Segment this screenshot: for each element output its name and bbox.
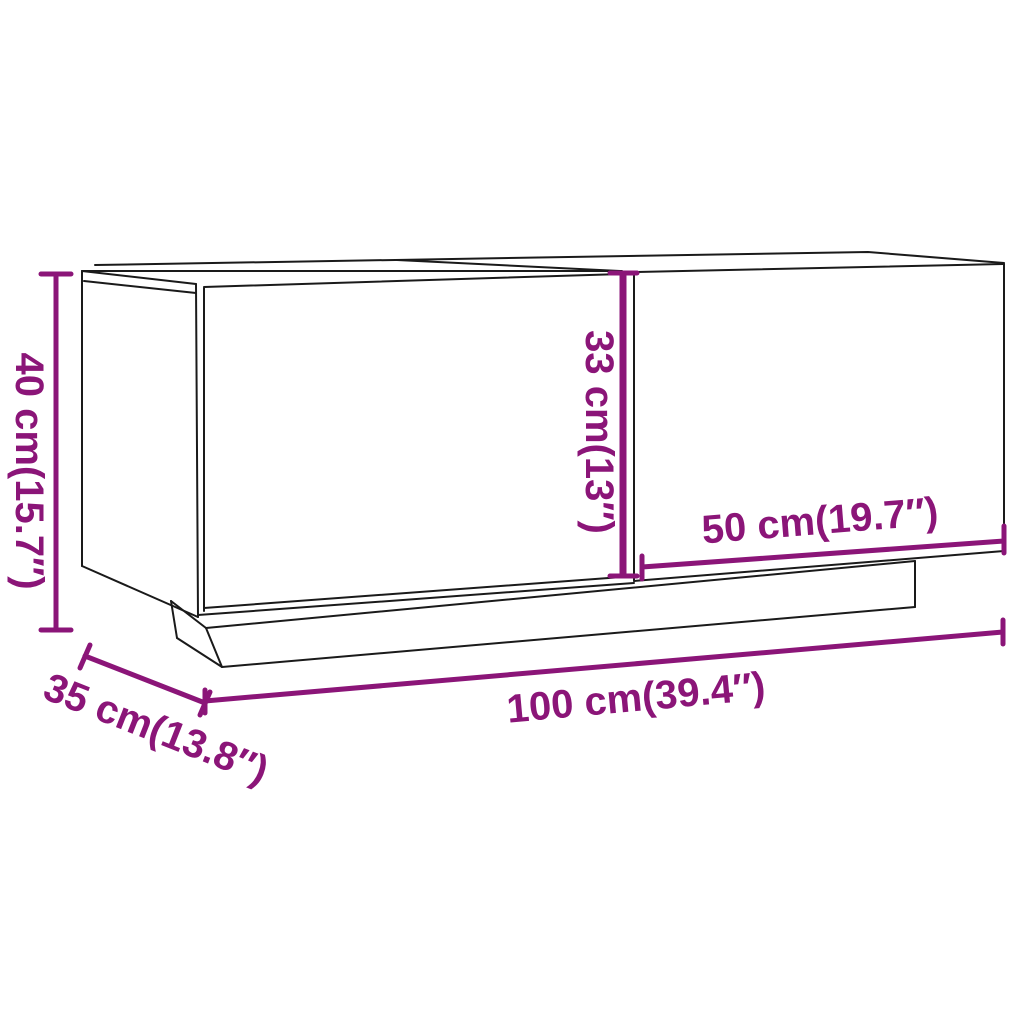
left-door-bottom-edge — [204, 577, 622, 608]
plinth-top-edge — [206, 561, 915, 628]
cabinet-top-front-edge-right — [637, 264, 1003, 272]
cabinet-drawing — [82, 252, 1004, 667]
cabinet-top-back-edge — [95, 252, 1004, 265]
width-dim-label: 100 cm(39.4″) — [505, 664, 767, 731]
left-door-top-edge — [204, 274, 622, 287]
body-bottom-edge-left — [198, 583, 634, 615]
dimension-lines — [41, 273, 1004, 715]
cabinet-top-seam-edge — [397, 260, 620, 271]
inner-height-dim-label: 33 cm(13″) — [577, 330, 621, 534]
front-left-corner-edge — [196, 284, 198, 617]
diagram-canvas: 40 cm(15.7″) 33 cm(13″) 50 cm(19.7″) 100… — [0, 0, 1024, 1024]
dimension-diagram: 40 cm(15.7″) 33 cm(13″) 50 cm(19.7″) 100… — [0, 0, 1024, 1024]
height-dim-label: 40 cm(15.7″) — [7, 352, 51, 589]
door-width-dim-line — [642, 541, 1004, 567]
door-width-dim-label: 50 cm(19.7″) — [700, 490, 940, 553]
dimension-labels: 40 cm(15.7″) 33 cm(13″) 50 cm(19.7″) 100… — [7, 330, 940, 793]
